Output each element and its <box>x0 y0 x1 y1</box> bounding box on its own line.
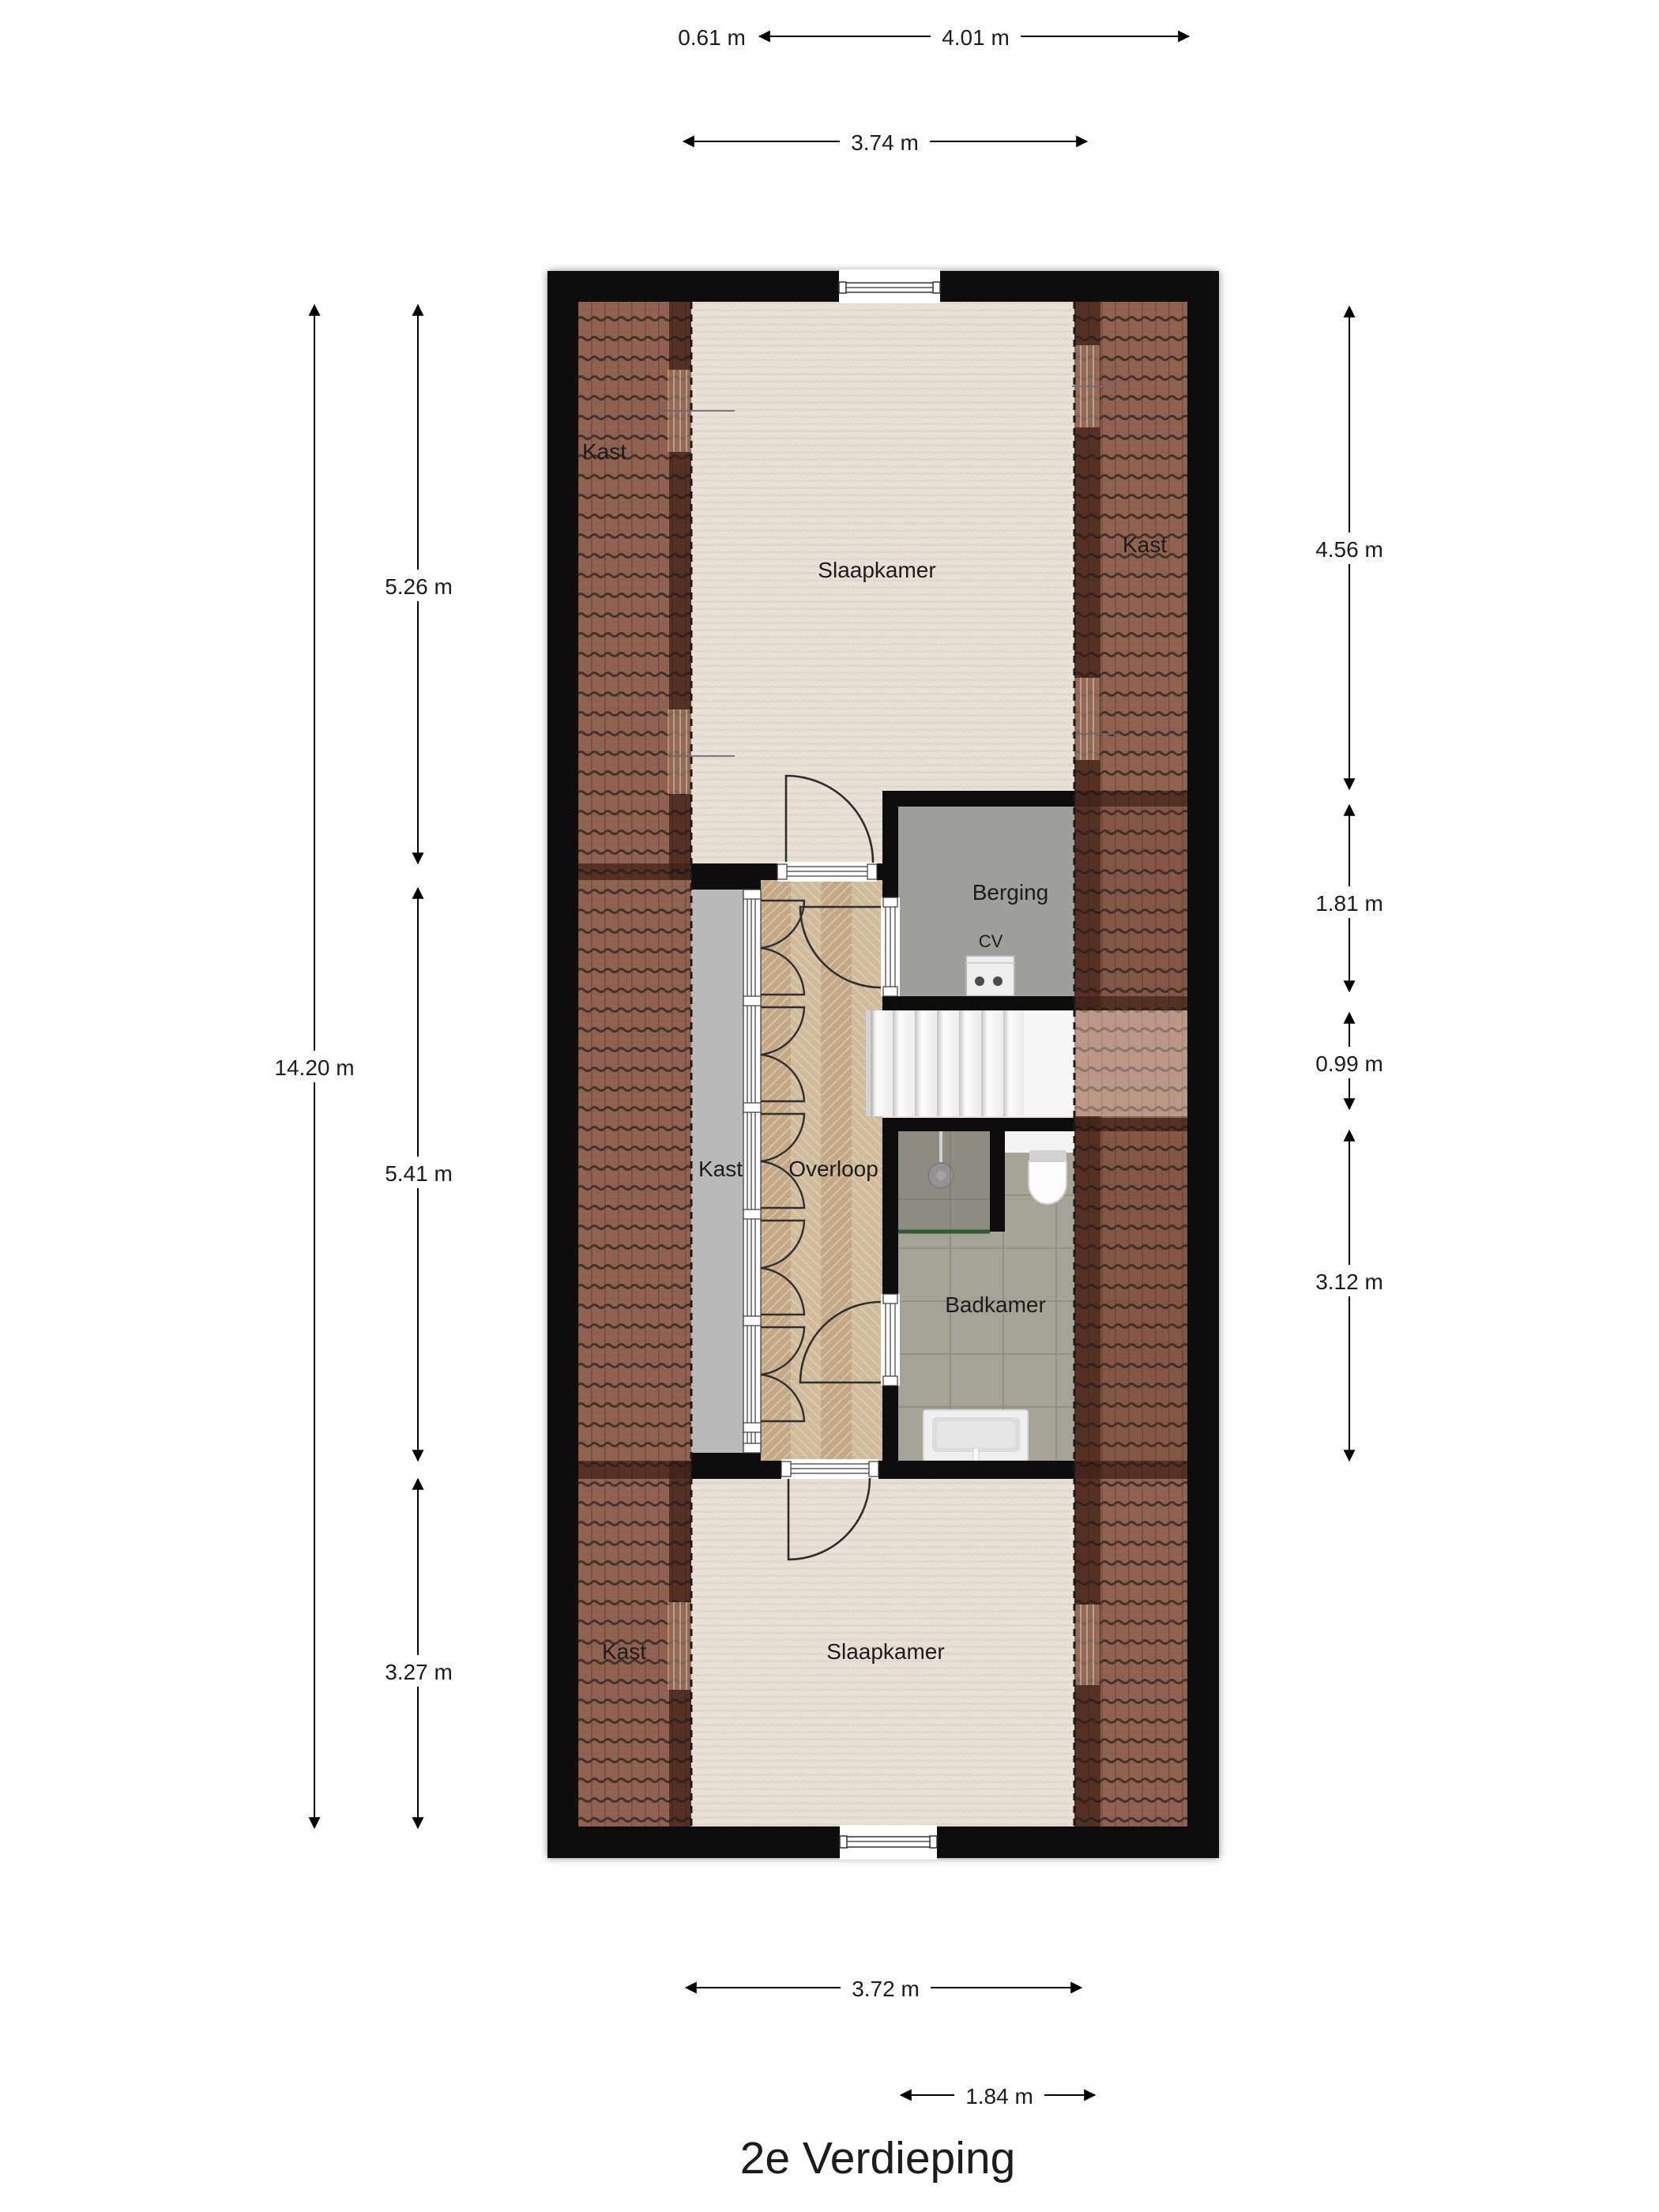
svg-text:3.74 m: 3.74 m <box>851 130 919 155</box>
svg-text:Kast: Kast <box>698 1157 743 1181</box>
svg-text:Badkamer: Badkamer <box>945 1292 1046 1317</box>
svg-text:5.26 m: 5.26 m <box>385 574 453 599</box>
svg-text:Slaapkamer: Slaapkamer <box>826 1639 944 1664</box>
svg-text:3.27 m: 3.27 m <box>385 1660 453 1684</box>
svg-text:Kast: Kast <box>1123 532 1167 557</box>
svg-text:CV: CV <box>979 931 1003 951</box>
svg-text:3.12 m: 3.12 m <box>1315 1270 1383 1294</box>
svg-text:4.56 m: 4.56 m <box>1315 537 1383 562</box>
svg-text:2e Verdieping: 2e Verdieping <box>740 2133 1016 2184</box>
svg-text:5.41 m: 5.41 m <box>385 1161 453 1186</box>
svg-text:0.99 m: 0.99 m <box>1315 1051 1383 1076</box>
svg-text:Kast: Kast <box>582 439 626 464</box>
svg-text:Slaapkamer: Slaapkamer <box>818 558 935 582</box>
svg-text:14.20 m: 14.20 m <box>274 1055 354 1080</box>
svg-text:0.61 m: 0.61 m <box>678 25 746 50</box>
svg-text:Overloop: Overloop <box>788 1157 878 1181</box>
svg-text:4.01 m: 4.01 m <box>942 25 1010 50</box>
svg-text:Kast: Kast <box>602 1639 646 1664</box>
svg-text:3.72 m: 3.72 m <box>852 1977 920 2001</box>
svg-text:1.84 m: 1.84 m <box>965 2084 1033 2109</box>
svg-text:1.81 m: 1.81 m <box>1315 891 1383 916</box>
svg-text:Berging: Berging <box>972 880 1049 905</box>
